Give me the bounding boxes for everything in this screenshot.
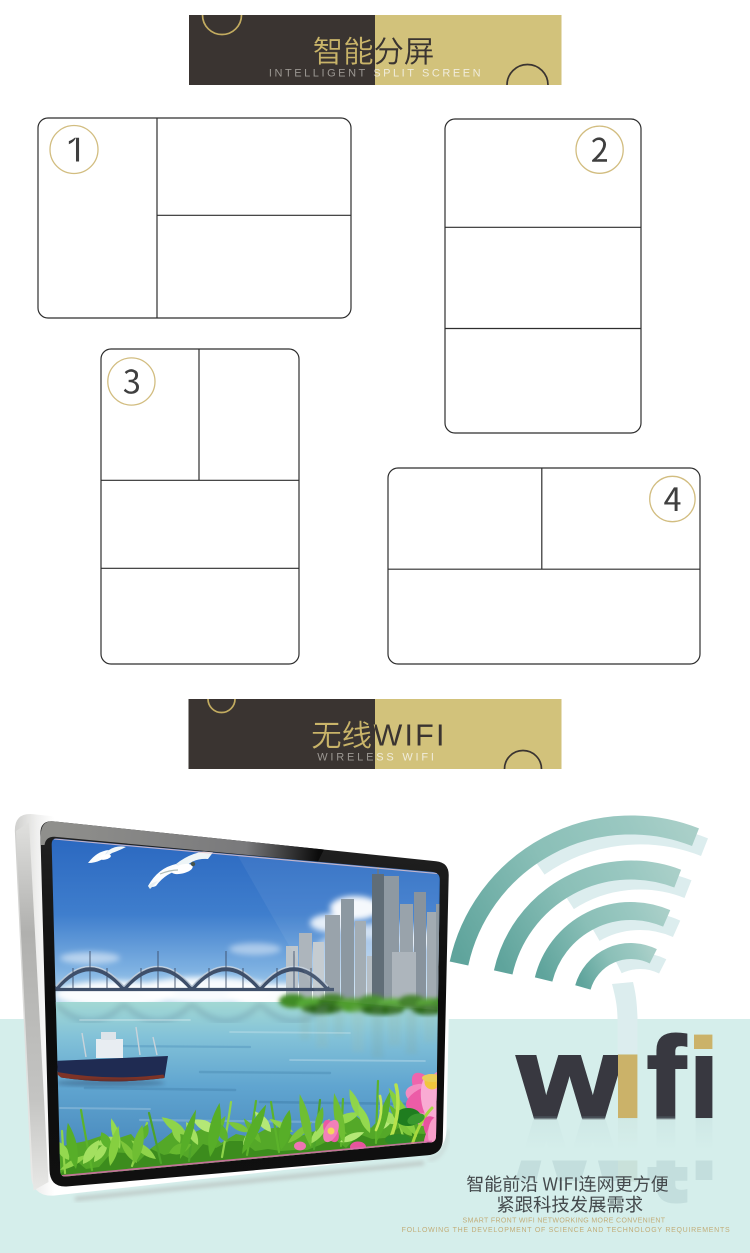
svg-text:SMART FRONT WIFI NETWORKING MO: SMART FRONT WIFI NETWORKING MORE CONVENI… xyxy=(463,1218,666,1225)
svg-text:WIFI: WIFI xyxy=(374,719,447,753)
svg-text:FOLLOWING THE DEVELOPMENT OF S: FOLLOWING THE DEVELOPMENT OF SCIENCE AND… xyxy=(402,1227,731,1234)
